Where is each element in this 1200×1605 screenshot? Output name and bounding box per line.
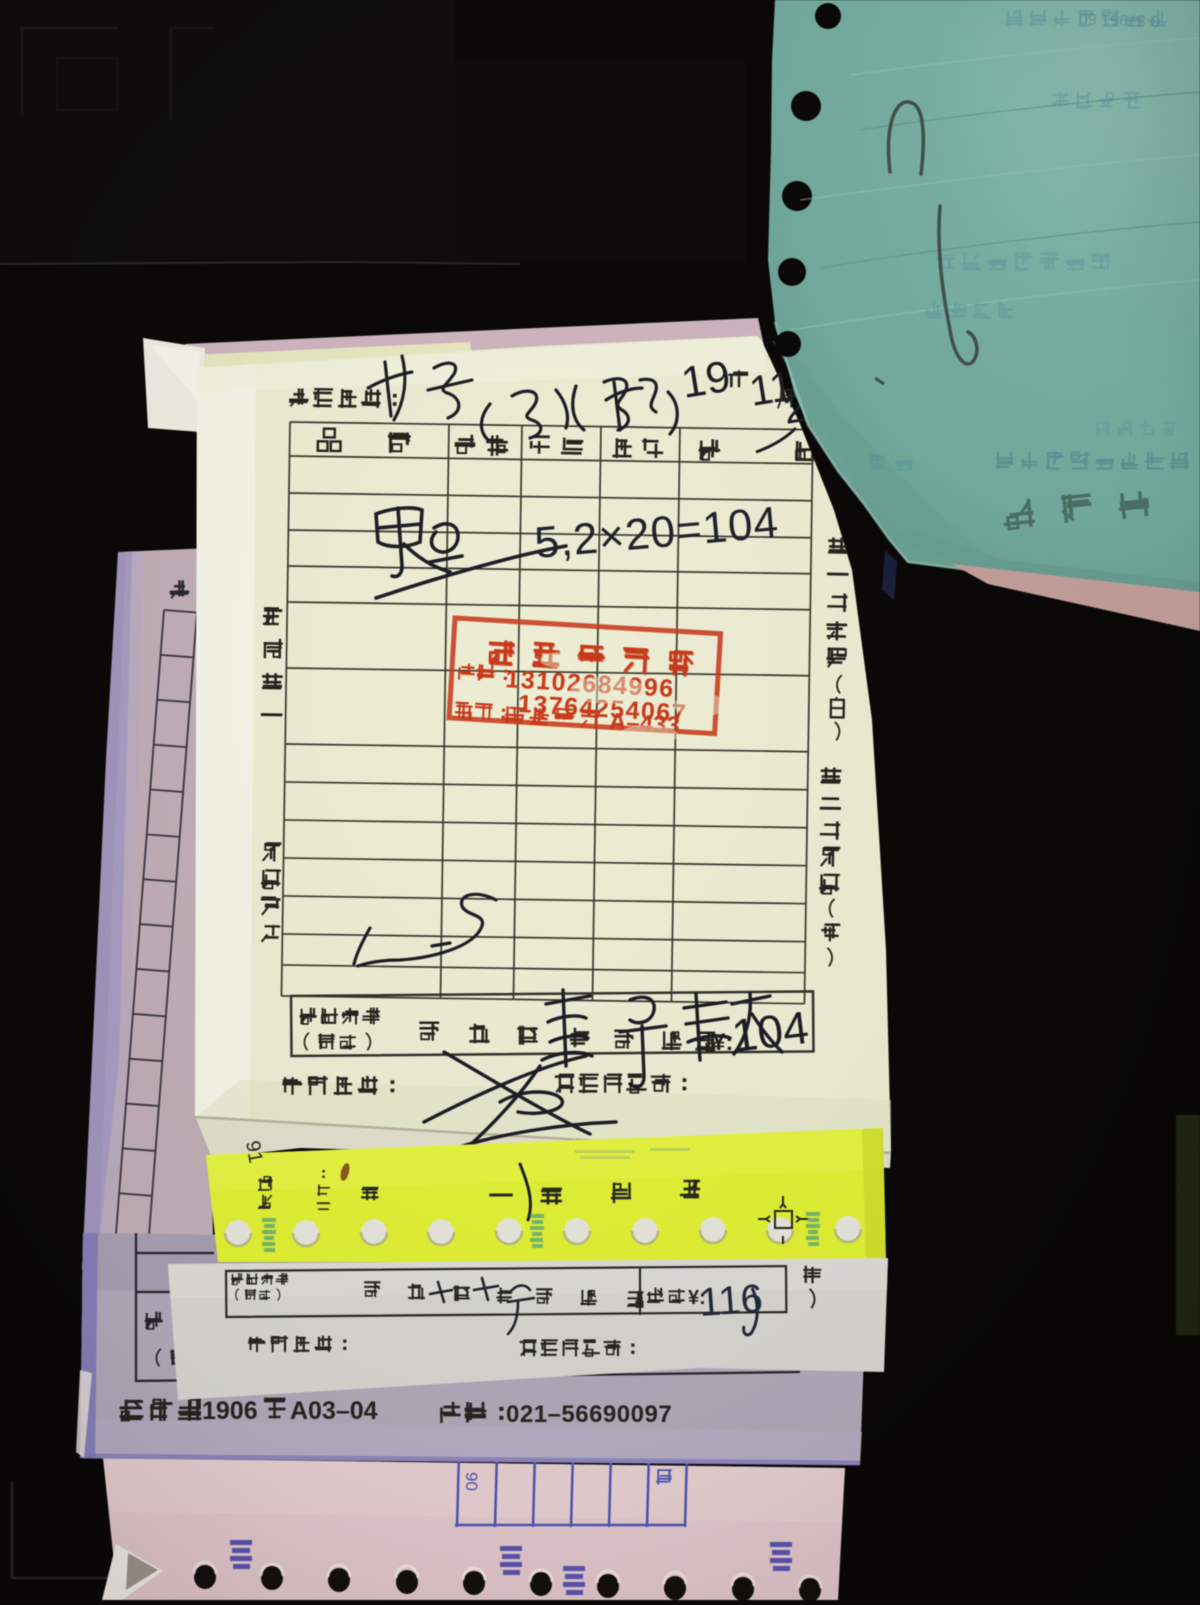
svg-text:0·87961 60: 0·87961 60 bbox=[1079, 9, 1161, 29]
svg-text:021–56690097: 021–56690097 bbox=[506, 1401, 672, 1428]
svg-text:19: 19 bbox=[678, 352, 734, 408]
svg-text:116: 116 bbox=[698, 1277, 765, 1325]
svg-text:90: 90 bbox=[462, 1472, 481, 1491]
svg-text:1906: 1906 bbox=[202, 1397, 258, 1425]
svg-text:104: 104 bbox=[729, 1001, 812, 1062]
svg-text:¥:: ¥: bbox=[712, 1029, 733, 1056]
svg-text:91: 91 bbox=[241, 1139, 267, 1165]
svg-text:A03–04: A03–04 bbox=[290, 1397, 378, 1425]
